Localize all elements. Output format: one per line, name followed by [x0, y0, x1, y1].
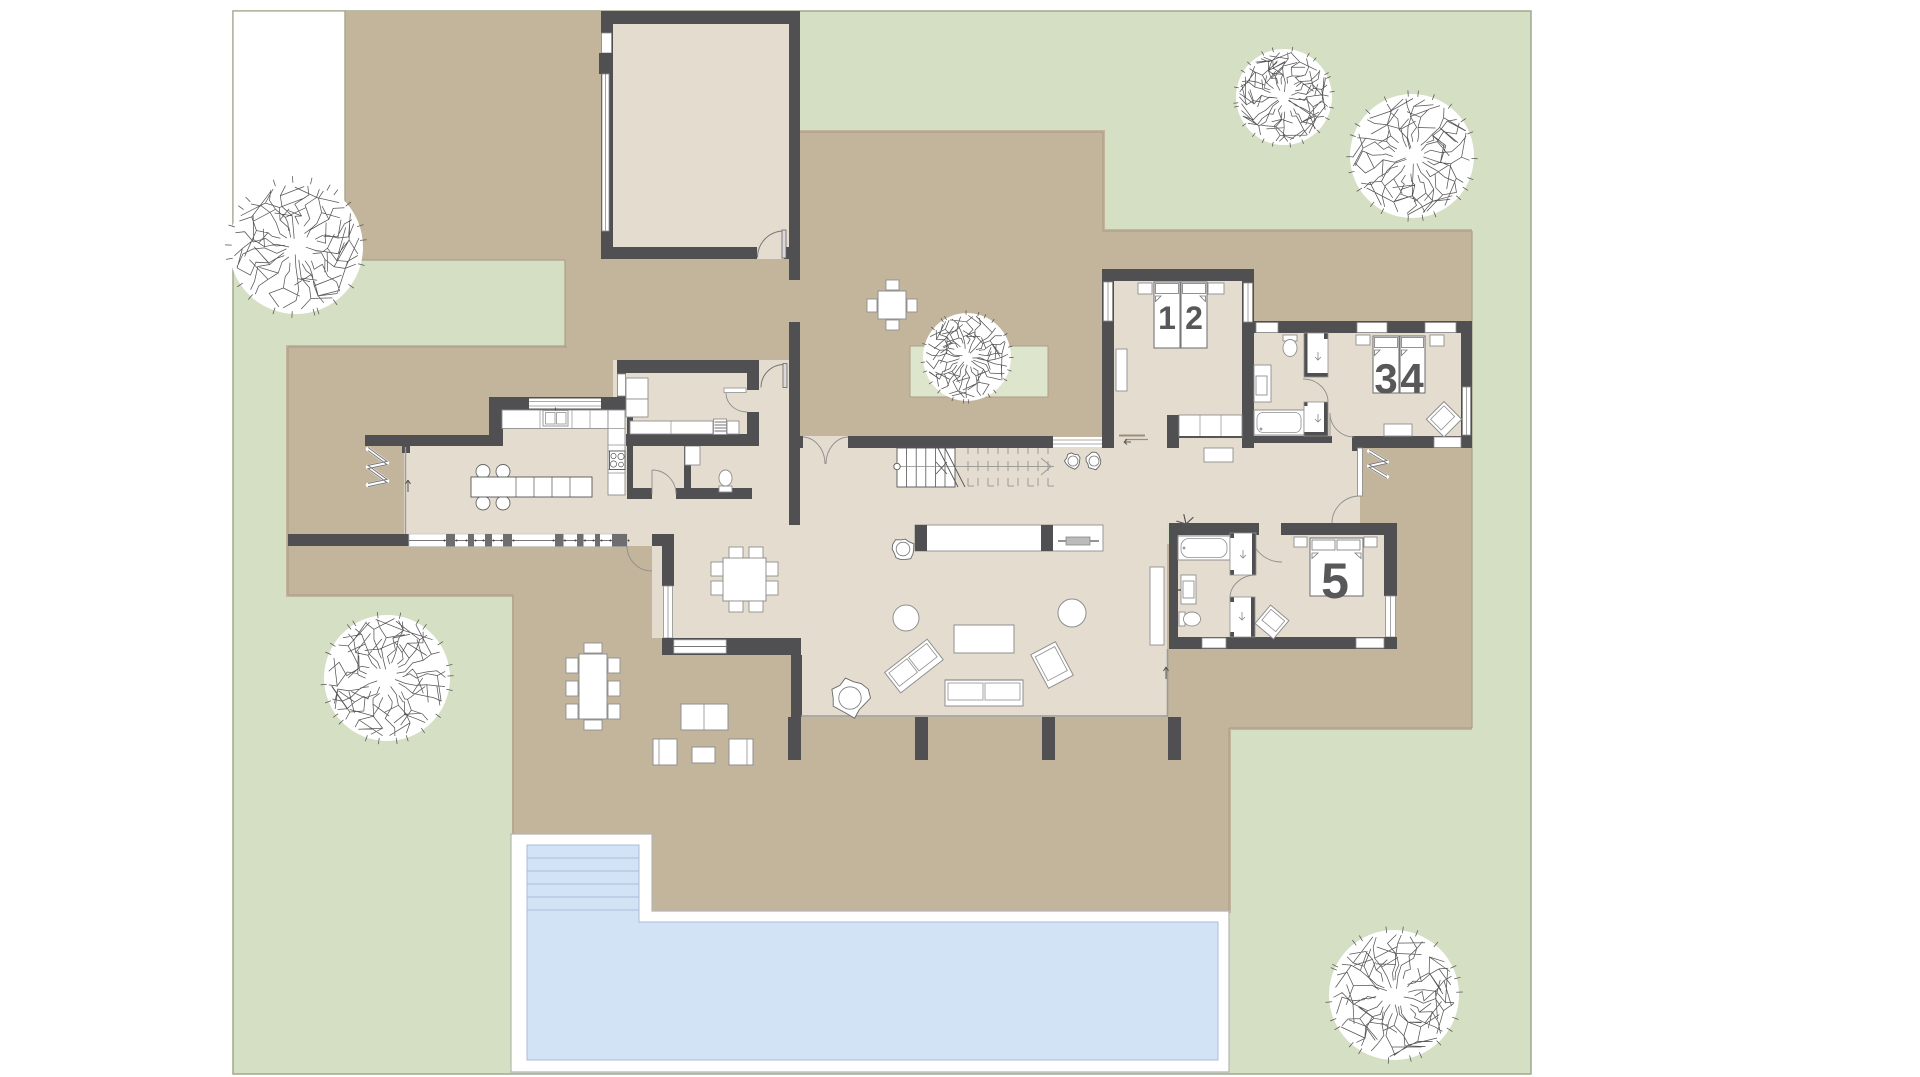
svg-text:5: 5: [1321, 553, 1349, 609]
svg-text:4: 4: [1400, 355, 1424, 402]
svg-text:1: 1: [1158, 300, 1176, 336]
svg-text:3: 3: [1374, 355, 1397, 402]
svg-text:2: 2: [1185, 300, 1203, 336]
